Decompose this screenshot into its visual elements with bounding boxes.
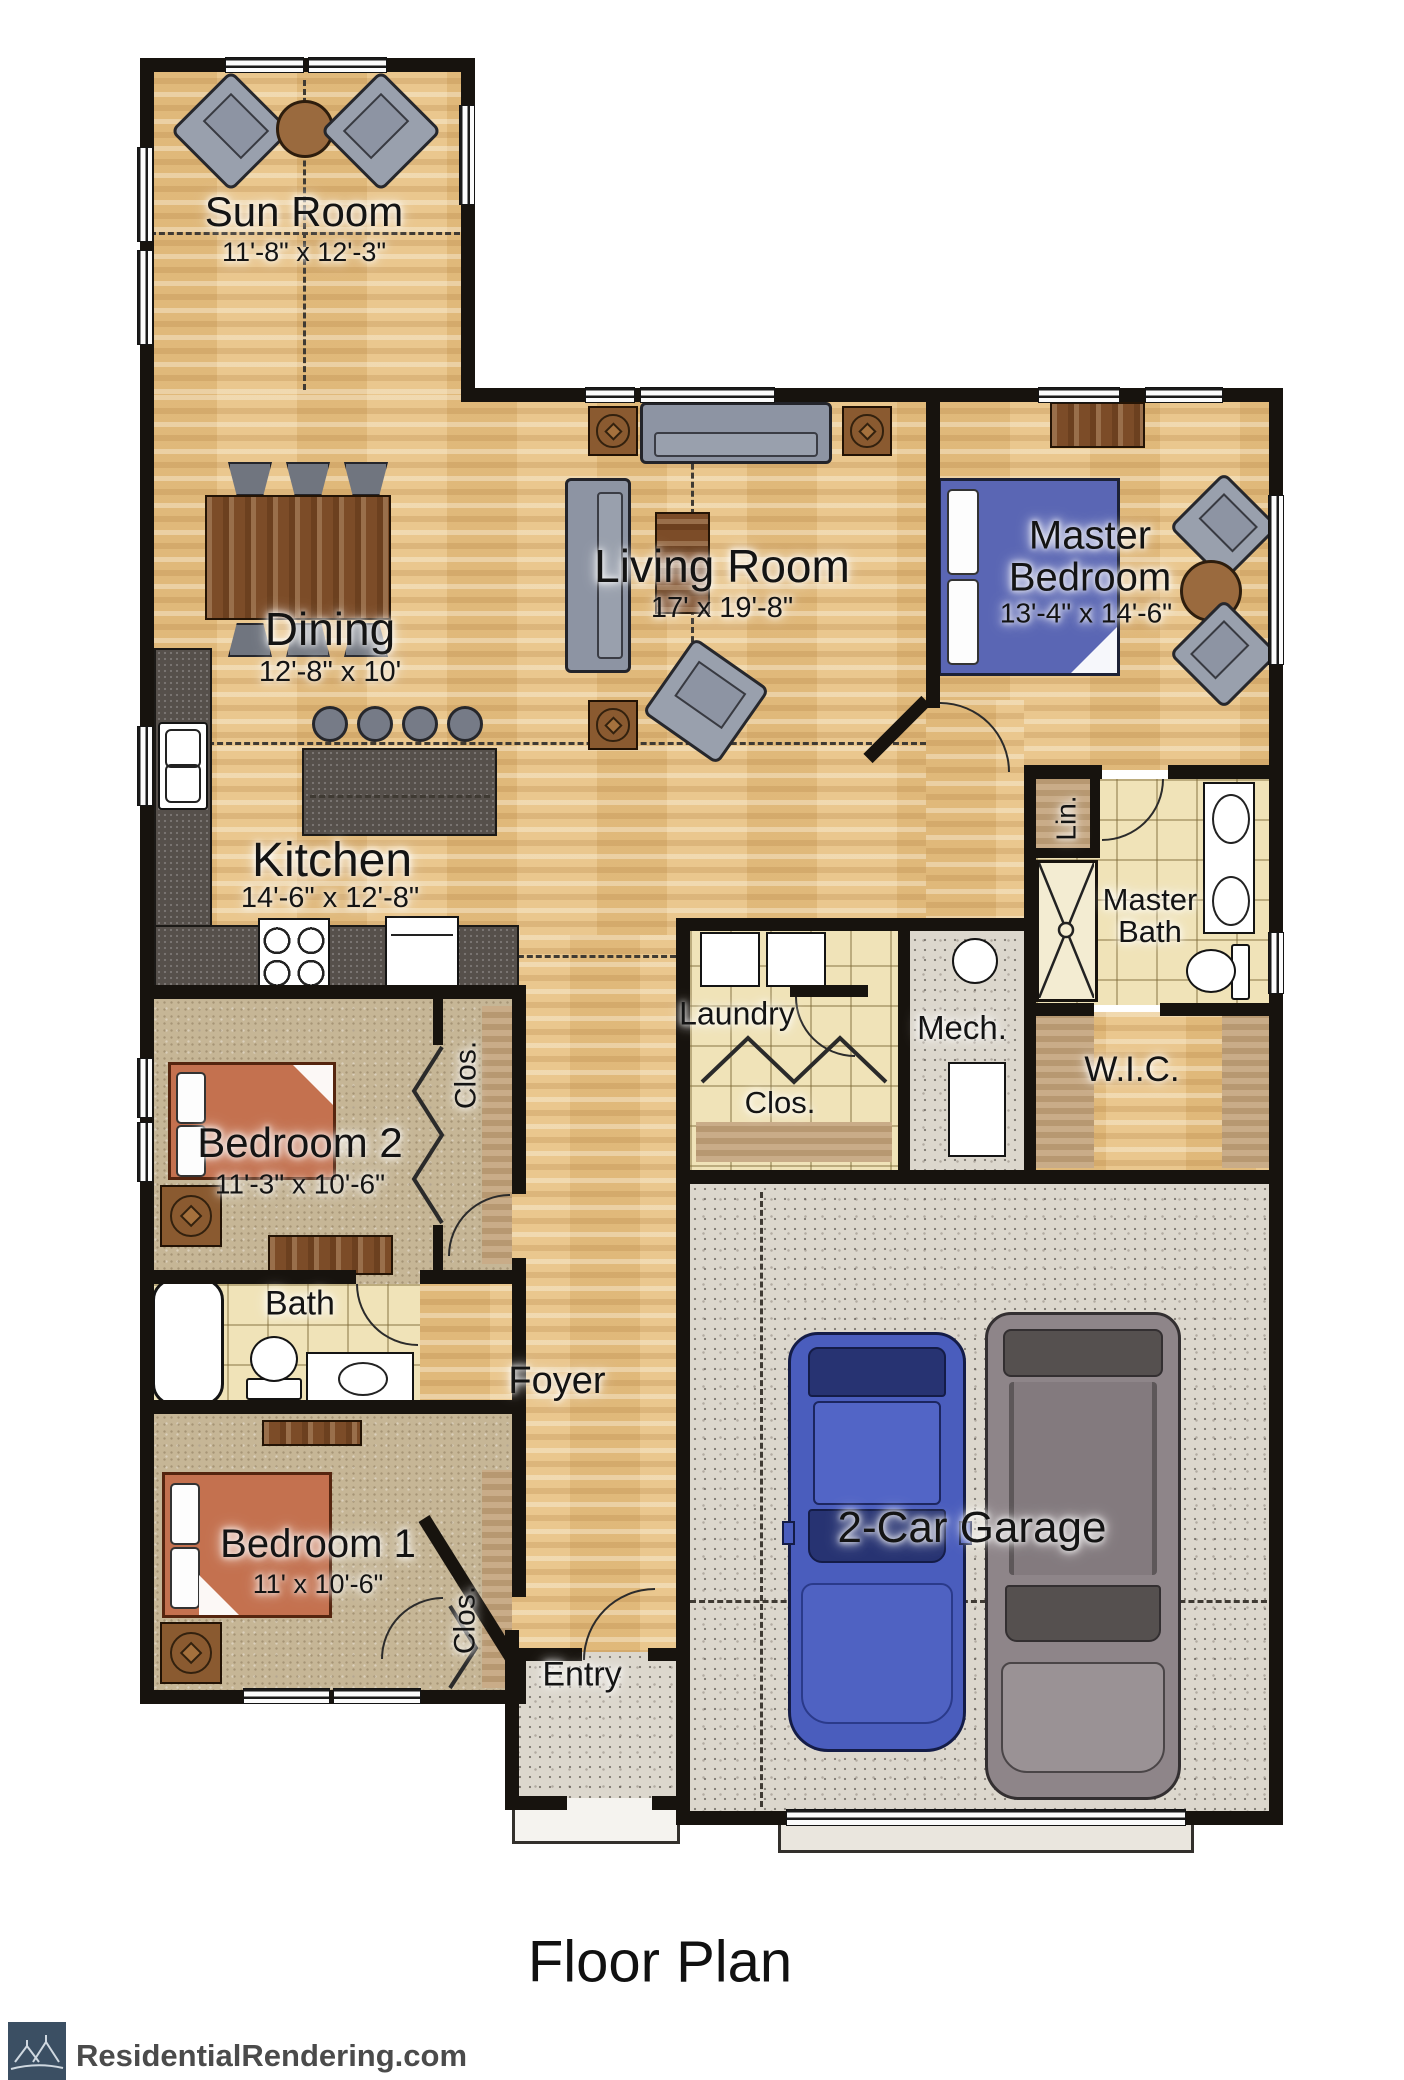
living-end-table-left: [588, 406, 638, 456]
bedroom1-window-1: [243, 1688, 330, 1704]
garage-apron: [778, 1825, 1194, 1853]
wic-shelf-right: [1222, 1016, 1269, 1168]
wall-kitchen-bedroom2: [140, 985, 526, 999]
dining-living-dash: [154, 742, 926, 745]
living-dims: 17' x 19'-8": [651, 593, 793, 623]
wall-garage-bottom-right: [1186, 1811, 1283, 1825]
bedroom2-dresser: [268, 1235, 393, 1275]
laundry-washer: [700, 932, 760, 987]
mech-hvac-unit: [948, 1062, 1006, 1157]
sunroom-window-left-1: [137, 147, 153, 242]
wall-bedroom2-bath-right: [420, 1270, 526, 1284]
sunroom-label: Sun Room: [205, 190, 403, 234]
wall-master-living: [926, 388, 940, 708]
laundry-label: Laundry: [679, 997, 795, 1030]
bedroom2-dims: 11'-3" x 10'-6": [215, 1169, 385, 1198]
garage-label: 2-Car Garage: [837, 1505, 1106, 1551]
kitchen-stool-1: [312, 706, 348, 742]
mech-label: Mech.: [917, 1011, 1007, 1045]
kitchen-window: [137, 726, 153, 806]
bedroom2-closet-bifold: [408, 1045, 446, 1225]
wall-foyer-garage: [676, 918, 690, 1825]
wall-master-bottom-right: [1168, 765, 1283, 779]
wall-suite-corridor: [1024, 765, 1036, 1180]
bath-toilet: [246, 1336, 298, 1400]
sunroom-window-top-1: [225, 57, 304, 73]
master-toilet: [1186, 944, 1250, 996]
wall-b2closet-stub-top: [433, 999, 443, 1045]
bedroom2-label: Bedroom 2: [197, 1121, 402, 1165]
page-title: Floor Plan: [528, 1929, 792, 1996]
living-window-1: [585, 387, 635, 403]
wall-linen-bottom: [1036, 848, 1098, 858]
wall-foyer-b2closet: [512, 998, 526, 1194]
bedroom1-nightstand: [160, 1622, 222, 1684]
island-dash: [310, 795, 490, 798]
wall-entry-bottom-left: [505, 1796, 567, 1810]
wall-laundry-stub: [790, 985, 868, 997]
bedroom2-nightstand: [160, 1185, 222, 1247]
bedroom1-dims: 11' x 10'-6": [253, 1570, 383, 1598]
houses-icon: [8, 2022, 66, 2080]
wall-linen-right: [1090, 779, 1100, 858]
sunroom-dims: 11'-8" x 12'-3": [222, 238, 386, 266]
kitchen-stool-3: [402, 706, 438, 742]
bedroom1-window-2: [333, 1688, 421, 1704]
kitchen-stool-4: [447, 706, 483, 742]
linen-label: Lin.: [1051, 795, 1080, 840]
laundry-dryer: [766, 932, 826, 987]
wall-laundry-top: [676, 918, 1036, 931]
garage-dash-horizontal: [690, 1600, 1276, 1603]
wall-bath-wic-left: [1024, 1003, 1094, 1016]
garage-floor: [690, 1184, 1276, 1814]
living-side-table: [588, 700, 638, 750]
master-window-top-1: [1038, 387, 1120, 403]
entry-label: Entry: [542, 1657, 621, 1692]
kitchen-stool-2: [357, 706, 393, 742]
wall-garage-bottom-left: [676, 1811, 786, 1825]
living-end-table-right: [842, 406, 892, 456]
laundry-closet-label: Clos.: [745, 1087, 816, 1119]
bath-label: Bath: [265, 1286, 335, 1321]
kitchen-dims: 14'-6" x 12'-8": [241, 883, 419, 913]
bedroom2-window-2: [137, 1122, 153, 1182]
dining-table: [205, 495, 391, 620]
wall-bath-bedroom1: [140, 1400, 526, 1414]
master-dresser: [1050, 402, 1145, 448]
wic-shelf-left: [1036, 1016, 1094, 1168]
laundry-closet-shelf: [696, 1122, 892, 1162]
kitchen-label: Kitchen: [252, 836, 412, 886]
dining-dims: 12'-8" x 10': [259, 657, 401, 687]
garage-door: [786, 1809, 1186, 1826]
wall-bedroom2-bath-left: [140, 1270, 356, 1284]
mech-water-softener: [952, 938, 998, 984]
master-bath-label: Master Bath: [1075, 884, 1225, 948]
wall-garage-top: [676, 1170, 1283, 1184]
master-window-right: [1268, 495, 1284, 665]
living-window-2: [640, 387, 775, 403]
brand-name: ResidentialRendering.com: [76, 2038, 467, 2074]
sunroom-window-top-2: [308, 57, 387, 73]
laundry-closet-bifold: [698, 1030, 890, 1088]
bedroom1-dresser: [262, 1420, 362, 1446]
master-bedroom-label: Master Bedroom: [965, 515, 1215, 598]
wall-foyer-b1: [512, 1414, 526, 1597]
garage-dash-vertical: [760, 1192, 763, 1807]
wall-b2closet-stub-bottom: [433, 1225, 443, 1270]
wic-label: W.I.C.: [1084, 1052, 1179, 1088]
kitchen-counter-bottom: [154, 925, 519, 987]
sunroom-window-right: [459, 105, 475, 205]
brand-logo: [8, 2022, 66, 2080]
dining-label: Dining: [265, 606, 395, 654]
wall-bath-wic-right: [1160, 1003, 1283, 1016]
bedroom2-window-1: [137, 1058, 153, 1118]
master-window-top-2: [1145, 387, 1223, 403]
sunroom-window-left-2: [137, 250, 153, 345]
master-bedroom-dims: 13'-4" x 14'-6": [1000, 598, 1172, 627]
bedroom1-label: Bedroom 1: [220, 1524, 416, 1566]
wall-laundry-mech: [898, 918, 910, 1170]
living-sofa: [640, 402, 832, 464]
floor-plan-page: Sun Room 11'-8" x 12'-3" Dining 12'-8" x…: [0, 0, 1404, 2080]
bath-tub: [152, 1278, 224, 1406]
kitchen-island: [302, 748, 497, 836]
bedroom1-closet-label: Clos.: [449, 1586, 480, 1654]
garage-suv-gray: [985, 1312, 1181, 1800]
wall-entry-bottom-right: [652, 1796, 690, 1810]
foyer-label: Foyer: [508, 1362, 605, 1402]
kitchen-sink: [158, 722, 208, 810]
bath-vanity: [306, 1352, 414, 1402]
bedroom2-closet-label: Clos.: [450, 1041, 481, 1109]
living-label: Living Room: [594, 543, 850, 591]
masterbath-window: [1268, 932, 1284, 994]
